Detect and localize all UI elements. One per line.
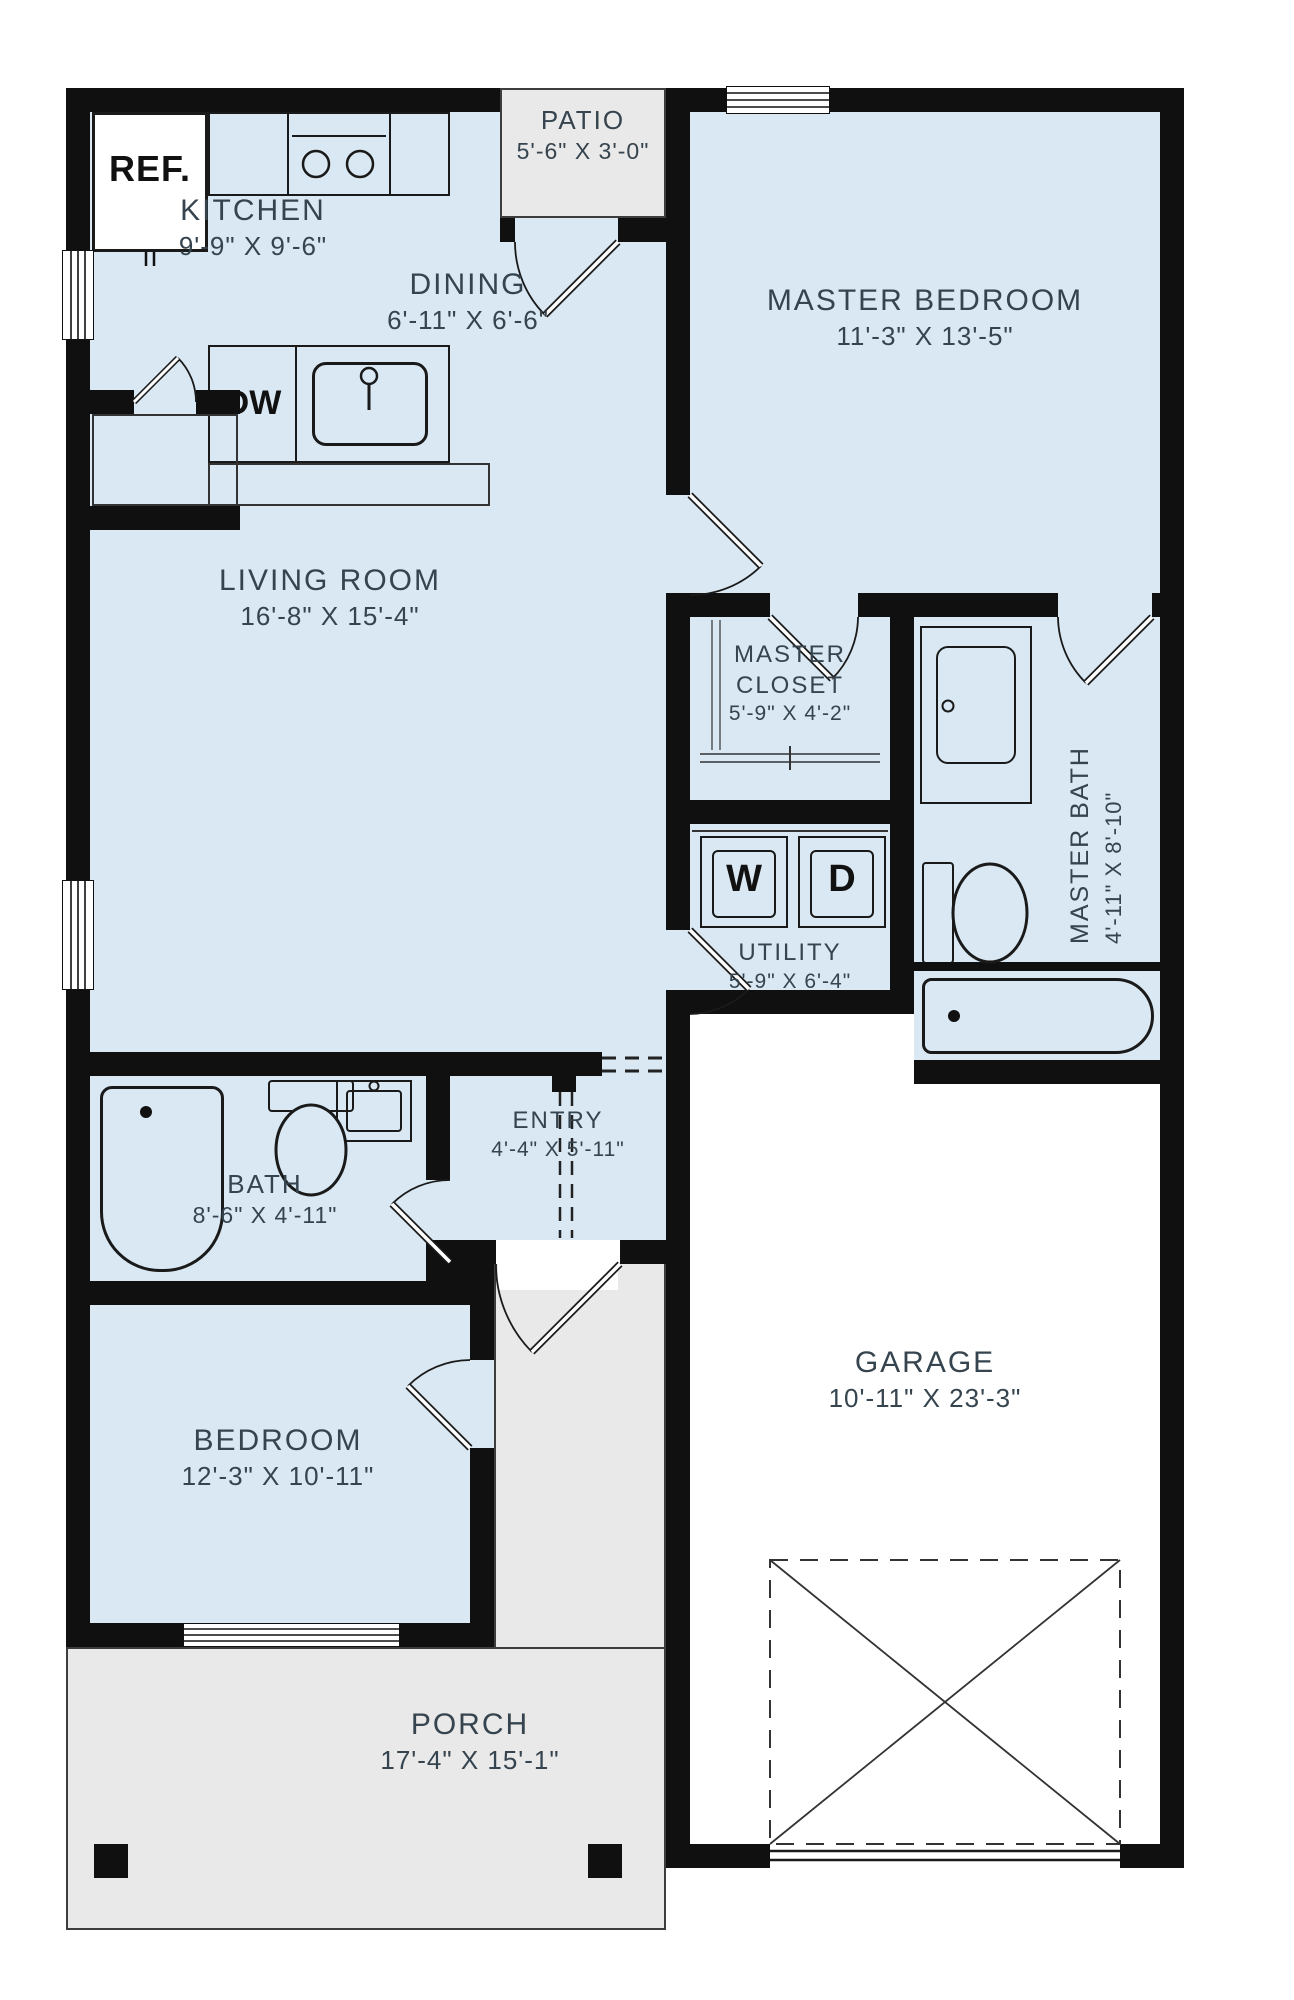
porch-slab (66, 1647, 666, 1930)
wall-segment (858, 593, 1058, 617)
label-bath: BATH 8'-6" X 4'-11" (140, 1168, 390, 1231)
label-garage: GARAGE 10'-11" X 23'-3" (690, 1344, 1160, 1416)
garage-door (770, 1851, 1120, 1860)
wall-segment (66, 1623, 183, 1647)
wall-segment (470, 1305, 494, 1360)
window (726, 86, 830, 114)
wall-segment (620, 1240, 690, 1264)
room-name: PATIO (500, 104, 666, 137)
washer-label: W (700, 858, 788, 901)
wall-segment (914, 962, 1160, 971)
door-threshold-floor (666, 495, 690, 595)
wall-segment (196, 390, 240, 414)
room-dims: 4'-4" X 5'-11" (450, 1137, 666, 1164)
wall-segment (66, 1281, 494, 1305)
room-name: BEDROOM (88, 1422, 468, 1460)
wall-segment (426, 1076, 450, 1180)
wall-segment (66, 506, 240, 530)
wall-segment (914, 1060, 1184, 1084)
master-toilet-tank (922, 862, 954, 964)
wall-segment (666, 800, 914, 824)
porch-post (588, 1844, 622, 1878)
room-name: GARAGE (690, 1344, 1160, 1382)
pantry-cavity (92, 414, 238, 506)
kitchen-counter-top (208, 112, 450, 196)
cased-opening-floor (602, 1052, 666, 1076)
front-door-threshold (498, 1264, 618, 1290)
room-dims: 8'-6" X 4'-11" (140, 1201, 390, 1230)
wall-segment (66, 1052, 602, 1076)
room-dims: 6'-11" X 6'-6" (378, 304, 558, 337)
label-master-closet: MASTER CLOSET 5'-9" X 4'-2" (690, 640, 890, 728)
room-name: MASTER CLOSET (690, 640, 890, 701)
kitchen-bar-counter (208, 463, 490, 506)
wall-segment (400, 1623, 470, 1647)
wall-segment (1160, 88, 1184, 1868)
room-name: PORCH (180, 1706, 760, 1744)
room-name: KITCHEN (78, 192, 428, 230)
room-dims: 5'-9" X 6'-4" (690, 969, 890, 996)
room-dims: 10'-11" X 23'-3" (690, 1382, 1160, 1415)
wall-segment (666, 112, 690, 218)
label-utility: UTILITY 5'-9" X 6'-4" (690, 938, 890, 996)
label-living-room: LIVING ROOM 16'-8" X 15'-4" (90, 562, 570, 634)
master-bath-sink (936, 646, 1016, 764)
kitchen-sink (312, 362, 428, 446)
room-dims: 12'-3" X 10'-11" (88, 1460, 468, 1493)
wall-segment (470, 1448, 494, 1647)
room-name: LIVING ROOM (90, 562, 570, 600)
room-name: ENTRY (450, 1106, 666, 1137)
label-entry: ENTRY 4'-4" X 5'-11" (450, 1106, 666, 1164)
wall-segment (666, 1844, 770, 1868)
label-master-bath: MASTER BATH 4'-11" X 8'-10" (1066, 664, 1127, 944)
room-dims: 5'-9" X 4'-2" (690, 701, 890, 728)
bath-sink (346, 1090, 402, 1132)
window (62, 880, 94, 990)
label-kitchen: KITCHEN 9'-9" X 9'-6" (78, 192, 428, 264)
wall-segment (666, 218, 690, 495)
floor-plan: REF. DW W D (0, 0, 1294, 2000)
wall-segment (666, 593, 770, 617)
porch-walkway-slab (494, 1264, 666, 1649)
room-dims: 16'-8" X 15'-4" (90, 600, 570, 633)
room-dims: 5'-6" X 3'-0" (500, 137, 666, 166)
label-dining: DINING 6'-11" X 6'-6" (378, 266, 558, 338)
refrigerator-label: REF. (98, 148, 202, 190)
wall-segment (552, 1076, 576, 1092)
room-dims: 9'-9" X 9'-6" (78, 230, 428, 263)
garage-parking-box (770, 1560, 1120, 1844)
room-name: BATH (140, 1168, 390, 1201)
wall-segment (66, 990, 90, 1647)
wall-segment (66, 88, 500, 112)
master-bathtub (922, 978, 1154, 1054)
room-dims: 11'-3" X 13'-5" (690, 320, 1160, 353)
label-bedroom: BEDROOM 12'-3" X 10'-11" (88, 1422, 468, 1494)
dryer-label: D (798, 858, 886, 901)
wall-segment (500, 218, 515, 242)
porch-post (94, 1844, 128, 1878)
wall-segment (830, 88, 1184, 112)
wall-segment (66, 340, 90, 880)
window (183, 1623, 400, 1647)
room-dims: 17'-4" X 15'-1" (180, 1744, 760, 1777)
room-name: MASTER BEDROOM (690, 282, 1160, 320)
label-porch: PORCH 17'-4" X 15'-1" (180, 1706, 760, 1778)
wall-segment (666, 595, 690, 930)
door-threshold-floor (470, 1360, 494, 1448)
wall-segment (1120, 1844, 1184, 1868)
door-threshold-floor (1058, 593, 1152, 617)
label-master-bedroom: MASTER BEDROOM 11'-3" X 13'-5" (690, 282, 1160, 354)
door-threshold-floor (770, 593, 858, 617)
room-dims: 4'-11" X 8'-10" (1101, 664, 1127, 944)
room-name: UTILITY (690, 938, 890, 969)
wall-segment (1152, 593, 1184, 617)
room-name: MASTER BATH (1066, 664, 1095, 944)
wall-segment (666, 88, 726, 112)
room-name: DINING (378, 266, 558, 304)
wall-segment (90, 390, 134, 414)
label-patio: PATIO 5'-6" X 3'-0" (500, 104, 666, 167)
